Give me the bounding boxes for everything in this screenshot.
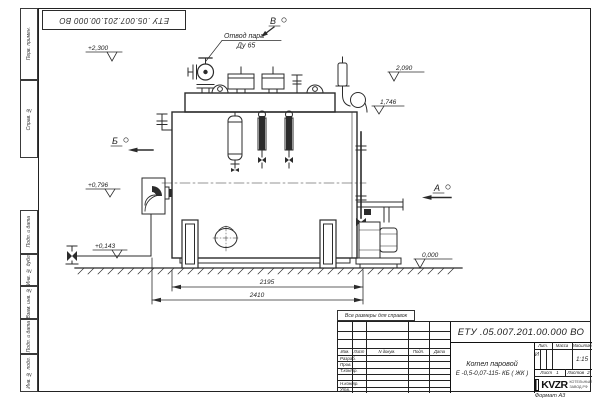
dim-label-overall: 2410 (249, 292, 265, 299)
kvzr-sub-line1: КОТЕЛЬНЫЙ (569, 380, 592, 384)
sheet-label: Лист (540, 370, 552, 375)
reference-note-box: Все размеры для справок (337, 310, 415, 321)
col-header-ndoc: N докум. (366, 348, 408, 355)
col-header-podp: Подп. (408, 348, 429, 355)
divider (540, 349, 541, 369)
divider (366, 322, 367, 393)
prop-header-massa: Масса (552, 342, 572, 349)
support-leg-right (320, 220, 336, 268)
prop-header-lit: Лит. (534, 342, 552, 349)
gauge-glass-right (285, 111, 293, 168)
dim-label-body: 2195 (259, 279, 275, 286)
doc-number: ЕТУ .05.007.201.00.000 ВО (450, 322, 592, 342)
drum-fittings (212, 57, 367, 112)
kvzr-sub-line2: ЗАВОД.РФ (569, 385, 592, 389)
drawing-sheet: Перв. примен. Справ. № Подп. и дата Инв.… (0, 0, 600, 400)
divider (429, 322, 430, 393)
role-tkontr: Т.контр. (338, 368, 366, 374)
product-line2: Е -0,5-0,07-115- КБ ( ЖК ) (456, 370, 529, 377)
level-label-0796: +0,796 (88, 182, 108, 189)
scale-value: 1:15 (572, 349, 592, 369)
divider (338, 339, 450, 340)
sheets-cell: Листов 2 (565, 369, 592, 376)
reference-note: Все размеры для справок (345, 313, 407, 319)
role-utv: Утв. (338, 387, 366, 393)
level-label-2090: 2,090 (395, 65, 413, 72)
product-line1: Котел паровой (466, 359, 518, 368)
col-header-list: Лист (352, 348, 366, 355)
floor-drain-valve (66, 246, 78, 264)
manhole (213, 226, 239, 251)
gauge-glass-left (258, 111, 266, 168)
col-header-data: Дата (429, 348, 450, 355)
steam-outlet-valve (188, 58, 214, 93)
support-leg-left (182, 220, 198, 268)
fan-unit (356, 199, 403, 268)
ground-line (75, 268, 462, 274)
format-label: Формат А3 (505, 393, 595, 399)
divider (338, 331, 450, 332)
callout-text-line2: Ду 65 (236, 43, 255, 50)
product-title: Котел паровой Е -0,5-0,07-115- КБ ( ЖК ) (450, 342, 534, 393)
left-side-valve (157, 114, 172, 130)
level-label-0143: +0,143 (95, 243, 115, 250)
litera-value: И (534, 349, 540, 360)
level-label-2300: +2,300 (88, 45, 108, 52)
kvzr-logo-word: KVZR (541, 379, 567, 391)
col-header-izm: Изм. (338, 348, 352, 355)
callout-text-line1: Отвод пара (224, 32, 264, 40)
sheets-label: Листов (567, 370, 584, 375)
view-label-v: В (270, 16, 276, 26)
manufacturer-logo: KVZR КОТЕЛЬНЫЙ ЗАВОД.РФ (534, 376, 592, 393)
sheets-value: 2 (587, 370, 590, 375)
sheet-value: 1 (556, 370, 559, 375)
level-label-0000: 0,000 (422, 252, 439, 259)
level-label-1746: 1,746 (380, 99, 397, 106)
feed-elbow-unit (77, 178, 172, 256)
divider (546, 349, 547, 369)
title-block: ЕТУ .05.007.201.00.000 ВО Изм. Лист N до… (337, 321, 591, 392)
view-label-b: Б (112, 136, 118, 146)
steam-drum (185, 93, 335, 112)
sheet-cell: Лист 1 (534, 369, 565, 376)
divider (408, 322, 409, 393)
view-label-a: А (433, 183, 440, 193)
kvzr-logo-subtext: КОТЕЛЬНЫЙ ЗАВОД.РФ (569, 380, 592, 389)
prop-header-masshtab: Масштаб (572, 342, 592, 349)
divider (338, 374, 450, 375)
kvzr-logo-icon (534, 379, 539, 391)
water-level-column (228, 112, 242, 172)
